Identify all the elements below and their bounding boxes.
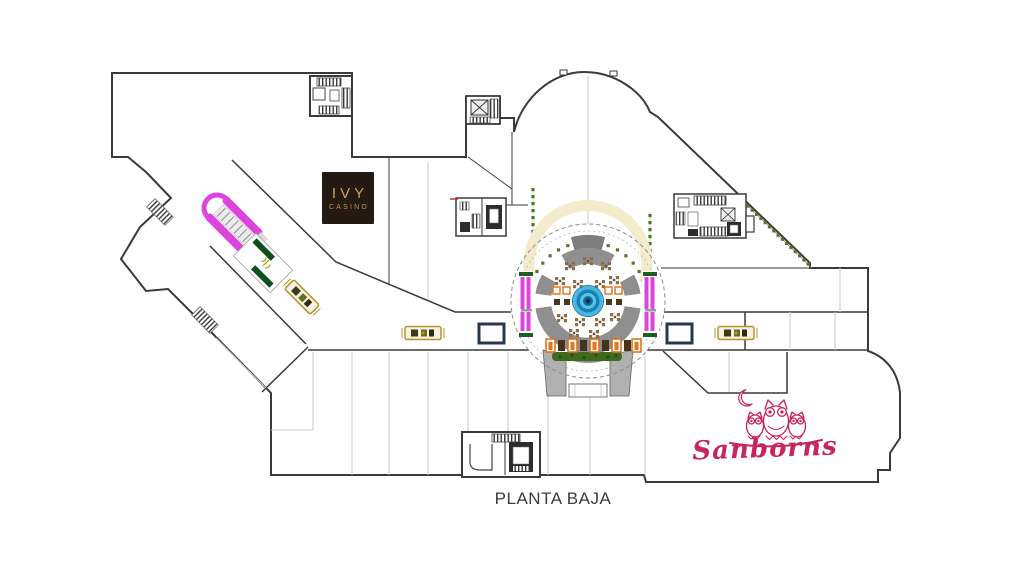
sanborns-label: Sanborns — [690, 433, 841, 464]
stair-core-south — [462, 432, 540, 477]
plaza-escalator-left-icon — [518, 271, 535, 337]
fountain-icon — [573, 286, 604, 317]
stair-core-northwest — [310, 76, 352, 116]
plaza-seating-row — [546, 339, 641, 352]
elevator-icon — [471, 100, 488, 115]
stairs-icon — [317, 78, 341, 86]
stair-core-northeast — [674, 194, 754, 238]
stair-core-north — [466, 96, 500, 124]
floor-plan-canvas: IVY CASINO Sanborns PLANTA BAJA — [0, 0, 1024, 576]
stair-core-central — [450, 198, 506, 236]
bench-icon — [402, 327, 444, 340]
bench-icon — [715, 327, 757, 340]
elevator-icon — [721, 208, 735, 221]
floor-title: PLANTA BAJA — [458, 489, 648, 509]
kiosk-icon — [479, 324, 504, 343]
plaza-planter — [552, 352, 622, 361]
ivy-casino-subtitle: CASINO — [327, 204, 369, 211]
kiosk-icon — [667, 324, 692, 343]
ivy-casino-sign: IVY CASINO — [322, 172, 374, 224]
ivy-casino-name: IVY — [328, 186, 368, 201]
plaza-escalator-right-icon — [642, 271, 659, 337]
